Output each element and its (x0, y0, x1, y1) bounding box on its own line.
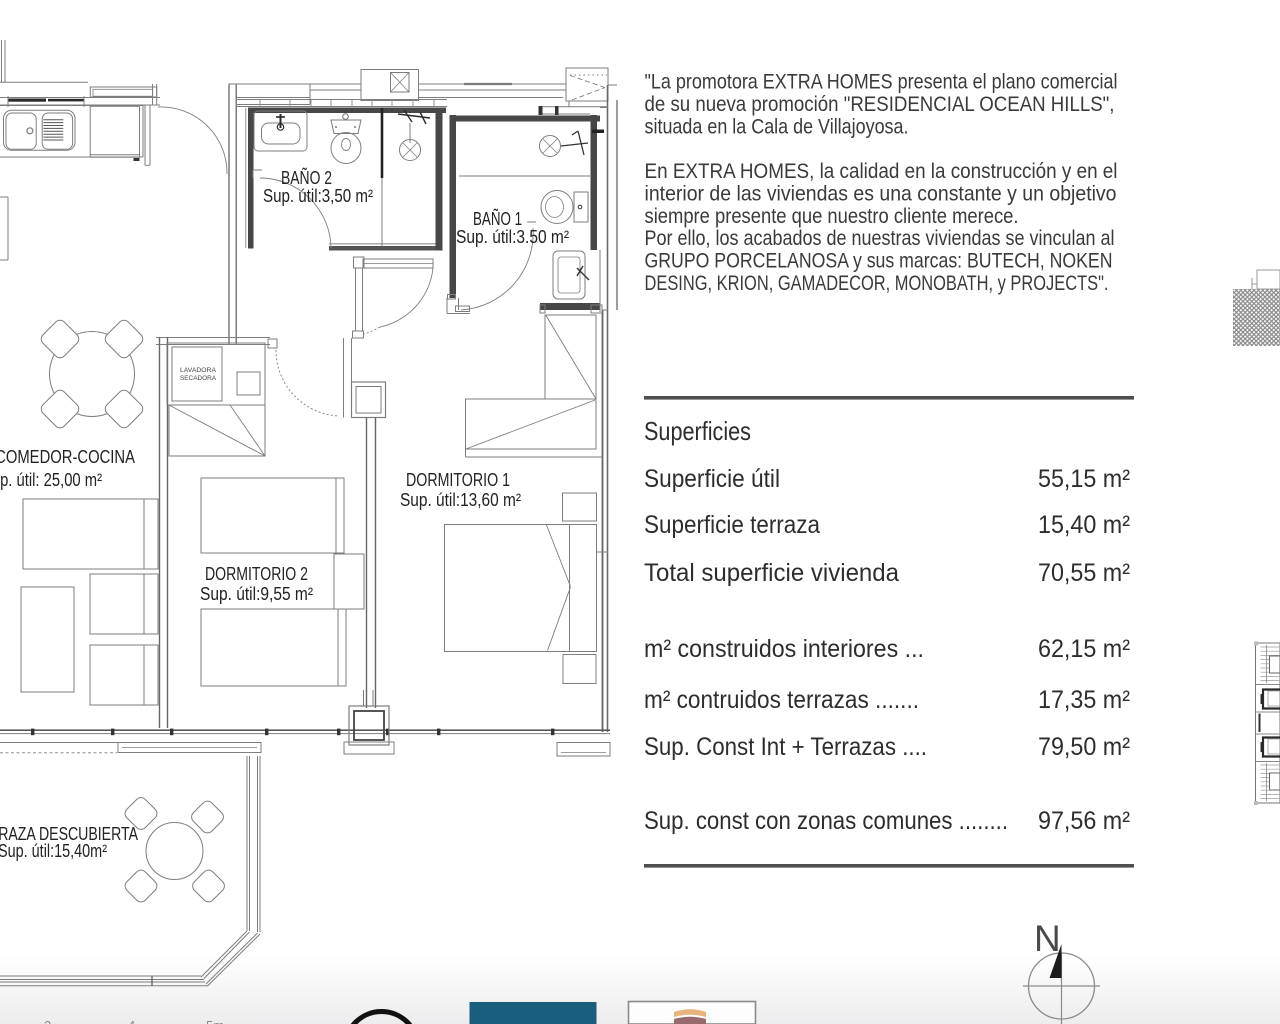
svg-text:situada en la Cala de Villajoy: situada en la Cala de Villajoyosa. (645, 114, 909, 138)
svg-text:m² construidos interiores ...: m² construidos interiores ... (644, 635, 924, 663)
svg-text:3: 3 (44, 1018, 51, 1024)
svg-text:5m: 5m (206, 1018, 224, 1024)
svg-text:GRUPO PORCELANOSA y sus marcas: GRUPO PORCELANOSA y sus marcas: BUTECH, … (645, 249, 1113, 273)
svg-text:En EXTRA HOMES, la calidad en: En EXTRA HOMES, la calidad en la constru… (645, 159, 1118, 183)
svg-text:BAÑO 1: BAÑO 1 (473, 208, 522, 229)
svg-text:interior de las viviendas es u: interior de las viviendas es una constan… (645, 181, 1117, 205)
svg-text:Sup. útil:3,50 m²: Sup. útil:3,50 m² (263, 186, 373, 206)
svg-text:de su nueva promoción "RESIDEN: de su nueva promoción "RESIDENCIAL OCEAN… (645, 92, 1115, 116)
svg-text:DORMITORIO 1: DORMITORIO 1 (406, 470, 510, 490)
svg-text:Total superficie vivienda: Total superficie vivienda (644, 559, 899, 587)
svg-text:62,15 m²: 62,15 m² (1038, 635, 1130, 663)
svg-text:55,15 m²: 55,15 m² (1038, 465, 1130, 493)
svg-text:70,55 m²: 70,55 m² (1038, 559, 1130, 587)
svg-text:79,50 m²: 79,50 m² (1038, 733, 1130, 761)
svg-text:15,40 m²: 15,40 m² (1038, 511, 1130, 539)
svg-text:Sup. útil:3.50 m²: Sup. útil:3.50 m² (456, 227, 569, 247)
svg-text:siempre presente que nuestro c: siempre presente que nuestro cliente mer… (645, 204, 1019, 228)
svg-text:Sup. útil: 25,00 m²: Sup. útil: 25,00 m² (0, 470, 102, 490)
svg-text:17,35 m²: 17,35 m² (1038, 686, 1130, 714)
svg-text:Sup. útil:9,55 m²: Sup. útil:9,55 m² (200, 584, 313, 604)
svg-text:Sup. const con zonas comunes .: Sup. const con zonas comunes ........ (644, 807, 1008, 835)
svg-text:SECADORA: SECADORA (180, 375, 217, 382)
svg-text:Sup. útil:13,60 m²: Sup. útil:13,60 m² (400, 490, 521, 510)
svg-text:Superficie útil: Superficie útil (644, 465, 780, 493)
svg-text:N: N (1034, 918, 1061, 959)
svg-text:DORMITORIO 2: DORMITORIO 2 (205, 564, 308, 584)
svg-text:m² contruidos terrazas .......: m² contruidos terrazas ....... (644, 686, 919, 714)
svg-text:"La promotora EXTRA HOMES pre: "La promotora EXTRA HOMES presenta el pl… (645, 70, 1118, 94)
svg-text:SALON-COMEDOR-COCINA: SALON-COMEDOR-COCINA (0, 447, 135, 467)
svg-text:Sup. Const Int + Terrazas ....: Sup. Const Int + Terrazas .... (644, 733, 927, 761)
svg-text:Sup. útil:15,40m²: Sup. útil:15,40m² (0, 841, 107, 861)
svg-text:97,56 m²: 97,56 m² (1038, 807, 1130, 835)
svg-text:DESING, KRION, GAMADECOR, MONO: DESING, KRION, GAMADECOR, MONOBATH, y PR… (645, 271, 1109, 295)
svg-text:Superficies: Superficies (644, 416, 751, 446)
svg-text:LAVADORA: LAVADORA (180, 367, 217, 374)
svg-text:BAÑO 2: BAÑO 2 (281, 167, 332, 188)
svg-text:Superficie terraza: Superficie terraza (644, 511, 820, 539)
svg-text:Por ello, los acabados de nues: Por ello, los acabados de nuestras vivie… (645, 226, 1115, 250)
svg-text:4: 4 (128, 1018, 135, 1024)
